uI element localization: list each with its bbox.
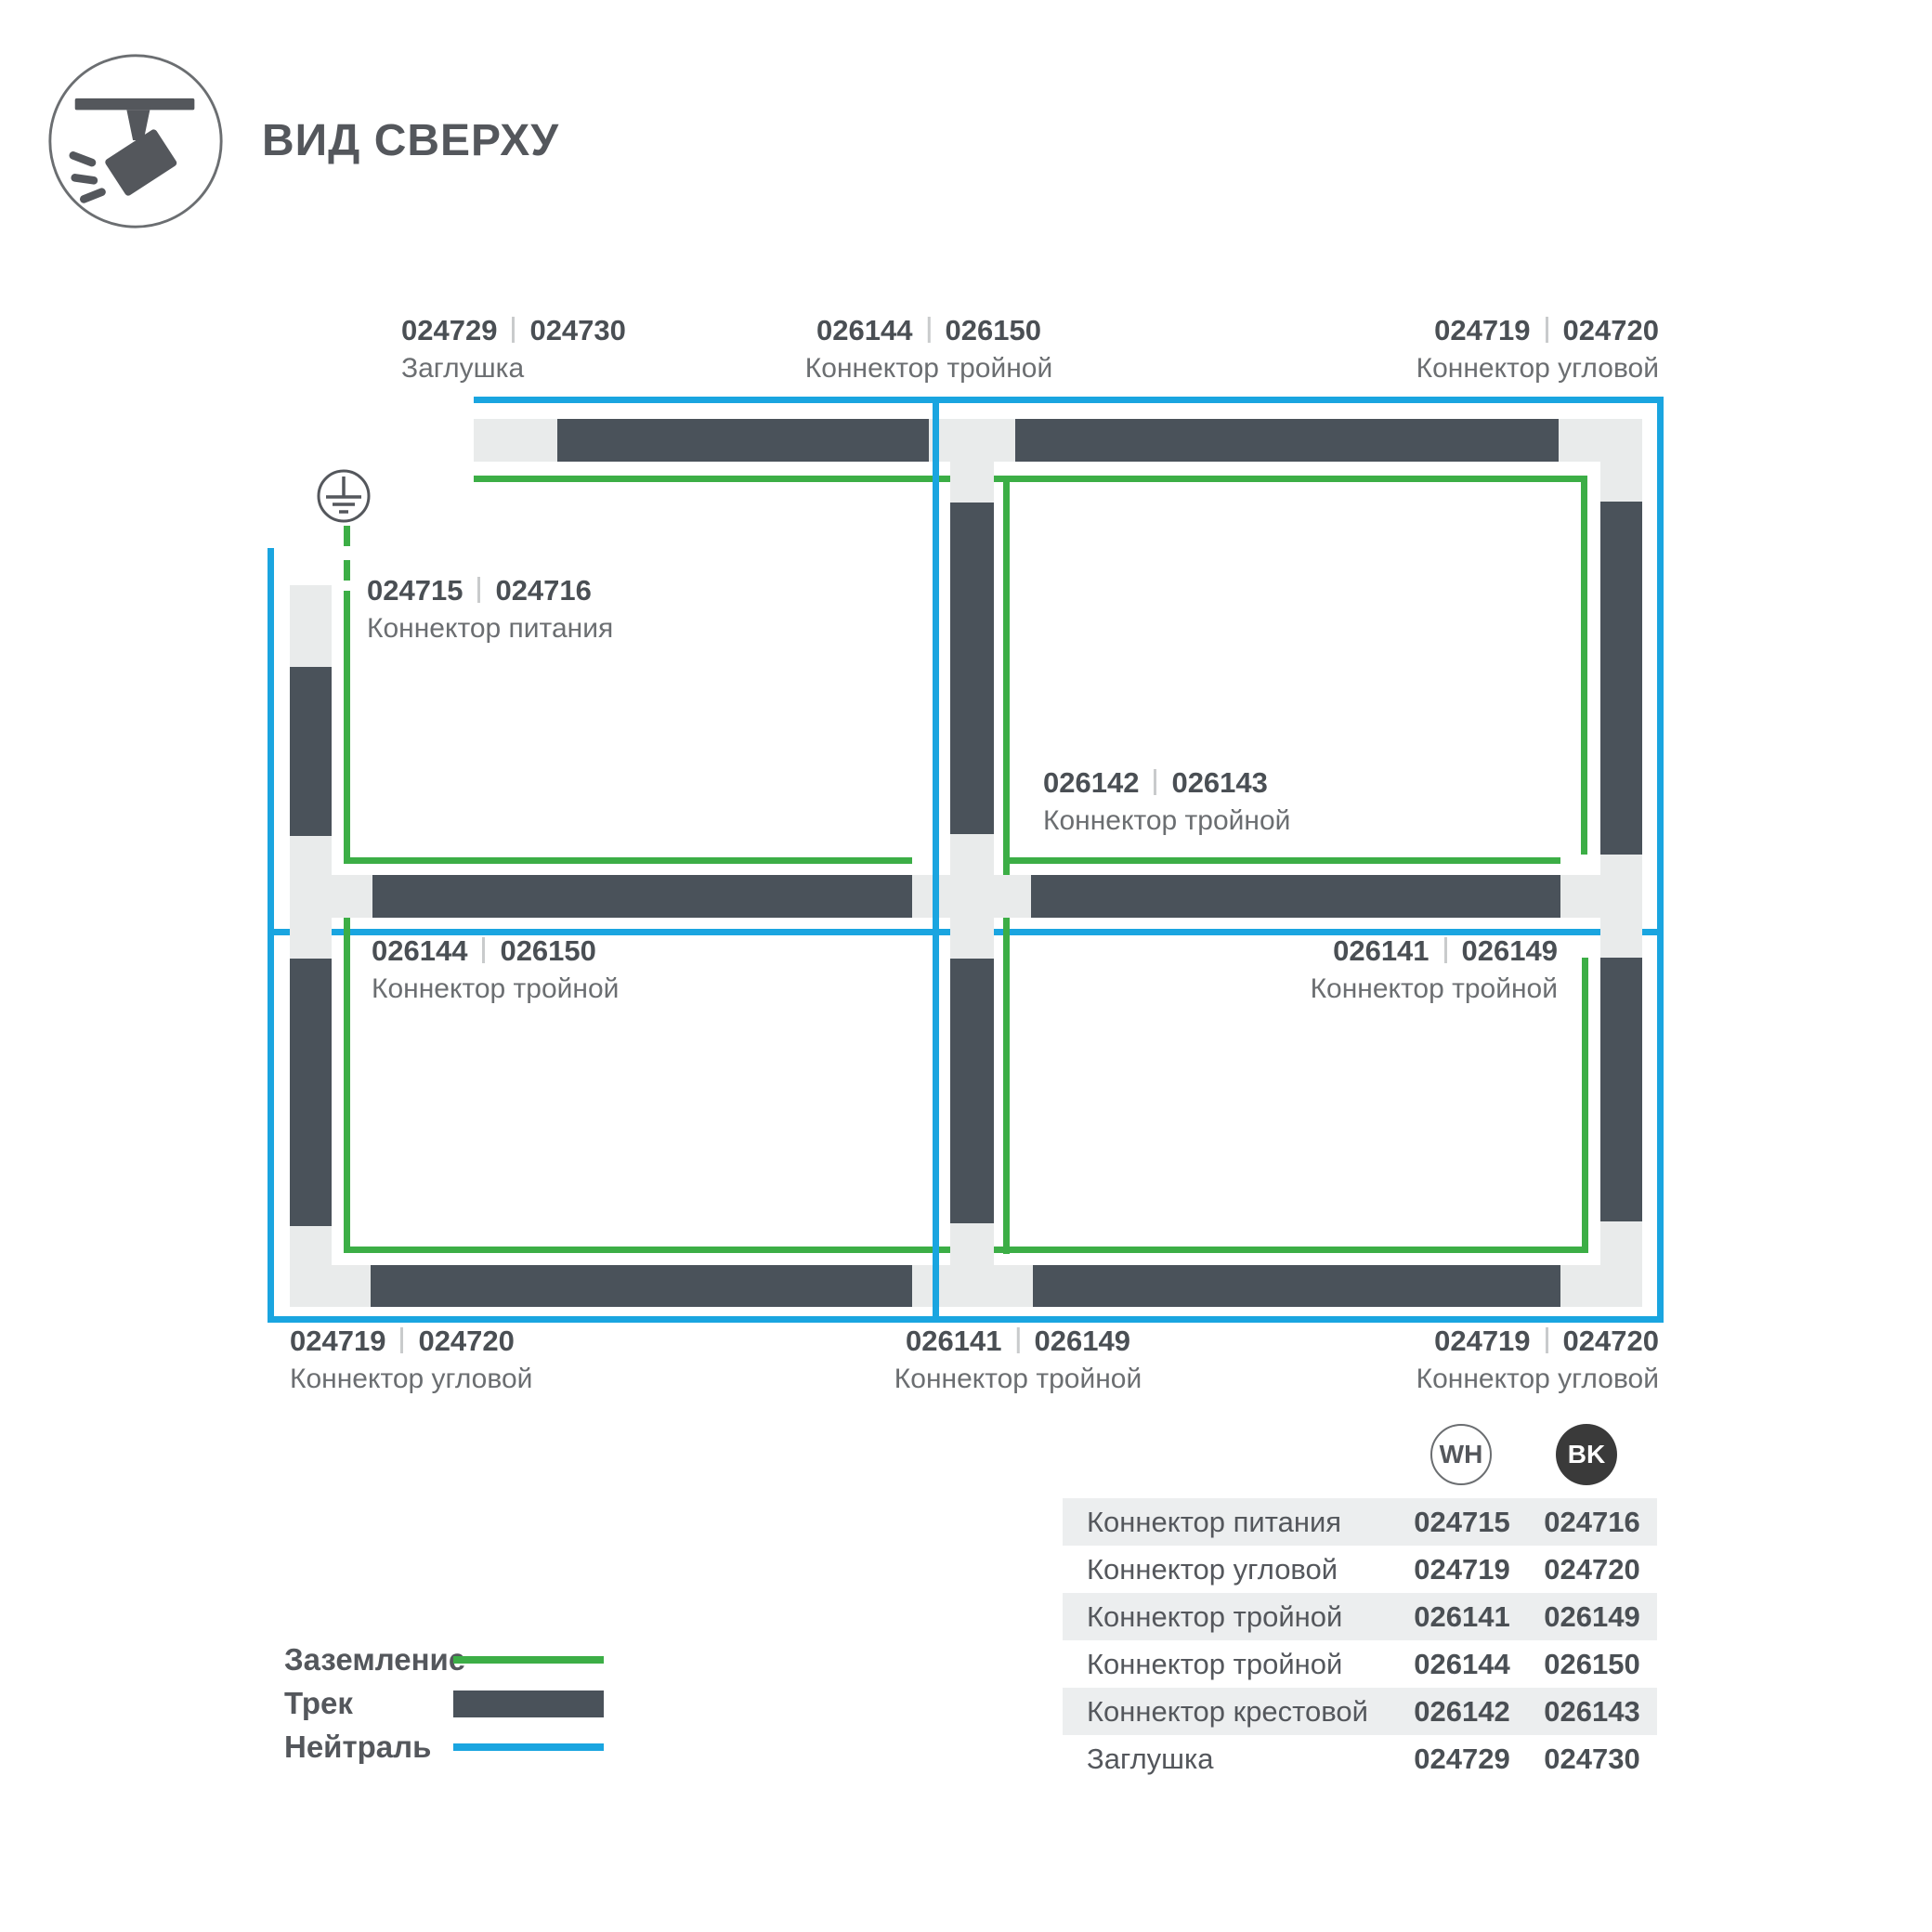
part-codes: 026144026150 bbox=[805, 316, 1052, 345]
track-bar-swatch bbox=[453, 1690, 604, 1717]
track-right-lower bbox=[1600, 958, 1642, 1221]
legend-label: Нейтраль bbox=[284, 1730, 453, 1765]
code-separator bbox=[1017, 1327, 1020, 1353]
ground-line-bottom-right-h bbox=[994, 1247, 1588, 1253]
tee-bottom-stem bbox=[950, 1223, 994, 1265]
cross-stem-down bbox=[950, 918, 994, 959]
part-codes: 024719024720 bbox=[290, 1326, 532, 1355]
part-codes: 024715024716 bbox=[367, 576, 613, 605]
corner-bl-h bbox=[290, 1265, 371, 1307]
part-codes: 026144026150 bbox=[372, 936, 619, 965]
part-name: Коннектор тройной bbox=[372, 975, 619, 1003]
label-tee-bottom: 026141026149 Коннектор тройной bbox=[894, 1326, 1142, 1393]
neutral-line-middle-v bbox=[933, 397, 939, 1323]
ground-dashed-lead bbox=[344, 526, 350, 591]
track-left-upper bbox=[290, 667, 332, 836]
table-row: Коннектор тройной 026144 026150 bbox=[1063, 1640, 1657, 1688]
ground-line-left-lower-v bbox=[344, 918, 350, 1253]
track-mid-row-right bbox=[1031, 875, 1560, 918]
neutral-line-swatch bbox=[453, 1743, 604, 1751]
tee-bottom-bar bbox=[912, 1265, 1033, 1307]
legend-label: Трек bbox=[284, 1686, 453, 1721]
label-corner-top-right: 024719024720 Коннектор угловой bbox=[1416, 316, 1659, 383]
power-connector bbox=[290, 585, 332, 667]
corner-tr-v bbox=[1600, 462, 1642, 502]
tee-top-bar bbox=[929, 419, 1015, 462]
parts-table: Коннектор питания 024715 024716 Коннекто… bbox=[1063, 1498, 1657, 1782]
part-name: Коннектор угловой bbox=[290, 1365, 532, 1393]
row-wh-code: 026141 bbox=[1397, 1600, 1527, 1634]
label-corner-bottom-left: 024719024720 Коннектор угловой bbox=[290, 1326, 532, 1393]
tee-mid-right-stem bbox=[1560, 875, 1600, 918]
row-wh-code: 026144 bbox=[1397, 1648, 1527, 1681]
corner-tr-h bbox=[1559, 419, 1642, 462]
row-name: Заглушка bbox=[1063, 1743, 1397, 1776]
part-codes: 024719024720 bbox=[1416, 316, 1659, 345]
label-tee-top: 026144026150 Коннектор тройной bbox=[805, 316, 1052, 383]
table-row: Коннектор питания 024715 024716 bbox=[1063, 1498, 1657, 1546]
ground-line-top-right bbox=[994, 476, 1587, 482]
row-bk-code: 026149 bbox=[1527, 1600, 1657, 1634]
ground-line-right-upper-v bbox=[1581, 476, 1587, 855]
code-separator bbox=[1546, 317, 1548, 343]
label-tee-mid-left: 026144026150 Коннектор тройной bbox=[372, 936, 619, 1003]
track-mid-col-lower bbox=[950, 959, 994, 1223]
color-badge-white: WH bbox=[1430, 1424, 1492, 1485]
code-separator bbox=[928, 317, 931, 343]
ground-line-top-left bbox=[474, 476, 950, 482]
neutral-line-bottom bbox=[268, 1316, 1664, 1323]
ground-line-bottom-left-h bbox=[344, 1247, 956, 1253]
tee-mid-left-stem bbox=[332, 875, 372, 918]
row-wh-code: 024715 bbox=[1397, 1506, 1527, 1539]
page-title: ВИД СВЕРХУ bbox=[262, 115, 559, 166]
corner-br-h bbox=[1560, 1265, 1642, 1307]
table-row: Коннектор угловой 024719 024720 bbox=[1063, 1546, 1657, 1593]
legend-row-ground: Заземление bbox=[284, 1642, 605, 1677]
row-bk-code: 026143 bbox=[1527, 1695, 1657, 1729]
part-name: Коннектор тройной bbox=[805, 355, 1052, 383]
row-bk-code: 024730 bbox=[1527, 1743, 1657, 1776]
track-right-upper bbox=[1600, 502, 1642, 855]
part-codes: 026141026149 bbox=[894, 1326, 1142, 1355]
part-codes: 026142026143 bbox=[1043, 768, 1290, 797]
earth-ground-icon bbox=[316, 468, 372, 524]
neutral-line-left bbox=[268, 548, 274, 1323]
label-cross-connector: 026142026143 Коннектор тройной bbox=[1043, 768, 1290, 835]
tee-top-stem bbox=[950, 462, 994, 503]
label-end-cap: 024729024730 Заглушка bbox=[401, 316, 626, 383]
track-spotlight-icon bbox=[46, 52, 225, 230]
code-separator bbox=[1154, 769, 1156, 795]
row-name: Коннектор угловой bbox=[1063, 1553, 1397, 1586]
code-separator bbox=[482, 937, 485, 963]
legend-label: Заземление bbox=[284, 1642, 453, 1677]
row-bk-code: 026150 bbox=[1527, 1648, 1657, 1681]
label-power-connector: 024715024716 Коннектор питания bbox=[367, 576, 613, 643]
row-name: Коннектор питания bbox=[1063, 1506, 1397, 1539]
part-name: Коннектор тройной bbox=[894, 1365, 1142, 1393]
part-codes: 024729024730 bbox=[401, 316, 626, 345]
color-badge-black: BK bbox=[1556, 1424, 1617, 1485]
legend-row-neutral: Нейтраль bbox=[284, 1730, 605, 1765]
neutral-line-top bbox=[474, 397, 1664, 403]
ground-line-left-upper-v bbox=[344, 591, 350, 864]
ground-line-right-lower-v bbox=[1582, 958, 1588, 1253]
row-bk-code: 024716 bbox=[1527, 1506, 1657, 1539]
table-row: Коннектор тройной 026141 026149 bbox=[1063, 1593, 1657, 1640]
neutral-line-right bbox=[1657, 397, 1664, 1323]
part-name: Коннектор угловой bbox=[1416, 1365, 1659, 1393]
track-bottom-right bbox=[1033, 1265, 1560, 1307]
cross-stem-up bbox=[950, 834, 994, 875]
page: ВИД СВЕРХУ bbox=[0, 0, 1932, 1932]
ground-line-mid-right-h bbox=[1003, 857, 1560, 864]
ground-line-center-v bbox=[1003, 476, 1010, 1254]
track-bottom-left bbox=[371, 1265, 912, 1307]
row-wh-code: 024719 bbox=[1397, 1553, 1527, 1586]
part-name: Заглушка bbox=[401, 355, 626, 383]
row-name: Коннектор тройной bbox=[1063, 1600, 1397, 1634]
track-left-lower bbox=[290, 959, 332, 1226]
track-top-left bbox=[557, 419, 929, 462]
table-row: Коннектор крестовой 026142 026143 bbox=[1063, 1688, 1657, 1735]
end-cap-top bbox=[474, 419, 557, 462]
legend: Заземление Трек Нейтраль bbox=[284, 1642, 605, 1773]
code-separator bbox=[1546, 1327, 1548, 1353]
ground-line-swatch bbox=[453, 1656, 604, 1664]
cross-bar bbox=[912, 875, 1031, 918]
corner-bl-v bbox=[290, 1226, 332, 1265]
part-name: Коннектор тройной bbox=[1043, 807, 1290, 835]
part-codes: 024719024720 bbox=[1416, 1326, 1659, 1355]
part-name: Коннектор угловой bbox=[1416, 355, 1659, 383]
label-corner-bottom-right: 024719024720 Коннектор угловой bbox=[1416, 1326, 1659, 1393]
row-wh-code: 024729 bbox=[1397, 1743, 1527, 1776]
track-top-right bbox=[1015, 419, 1559, 462]
ground-line-mid-left-h bbox=[344, 857, 912, 864]
tee-mid-left-bar bbox=[290, 836, 332, 959]
label-tee-mid-right: 026141026149 Коннектор тройной bbox=[1311, 936, 1558, 1003]
row-name: Коннектор тройной bbox=[1063, 1648, 1397, 1681]
part-name: Коннектор тройной bbox=[1311, 975, 1558, 1003]
row-wh-code: 026142 bbox=[1397, 1695, 1527, 1729]
track-mid-row-left bbox=[372, 875, 912, 918]
corner-br-v bbox=[1600, 1221, 1642, 1265]
tee-mid-right-bar bbox=[1600, 855, 1642, 958]
table-row: Заглушка 024729 024730 bbox=[1063, 1735, 1657, 1782]
code-separator bbox=[400, 1327, 403, 1353]
part-name: Коннектор питания bbox=[367, 615, 613, 643]
track-mid-col-upper bbox=[950, 503, 994, 834]
part-codes: 026141026149 bbox=[1311, 936, 1558, 965]
legend-row-track: Трек bbox=[284, 1686, 605, 1721]
row-name: Коннектор крестовой bbox=[1063, 1695, 1397, 1729]
code-separator bbox=[477, 577, 480, 603]
row-bk-code: 024720 bbox=[1527, 1553, 1657, 1586]
code-separator bbox=[1444, 937, 1447, 963]
code-separator bbox=[512, 317, 515, 343]
